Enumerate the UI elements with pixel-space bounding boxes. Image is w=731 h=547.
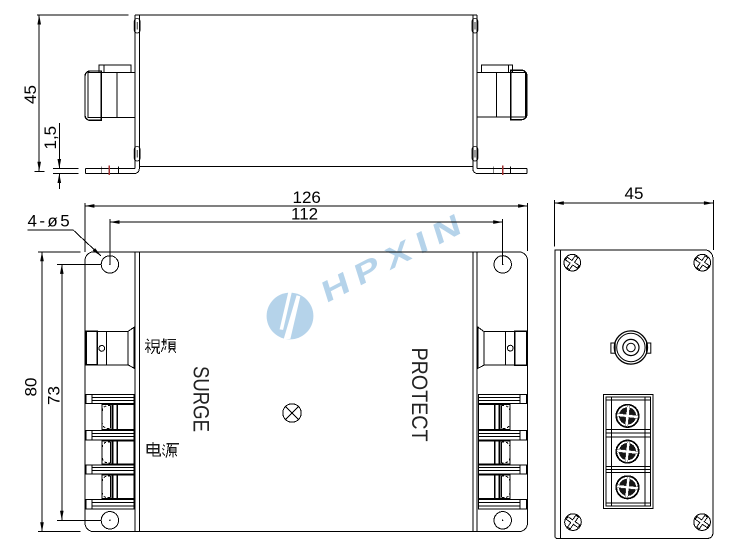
svg-text:1,5: 1,5	[41, 126, 60, 150]
svg-text:PROTECT: PROTECT	[407, 348, 432, 442]
svg-text:80: 80	[22, 378, 41, 397]
svg-text:45: 45	[21, 85, 40, 104]
svg-text:112: 112	[291, 204, 318, 223]
svg-text:4-ø5: 4-ø5	[28, 212, 73, 231]
svg-text:SURGE: SURGE	[189, 366, 214, 432]
svg-text:45: 45	[625, 184, 644, 203]
svg-text:73: 73	[45, 386, 64, 405]
